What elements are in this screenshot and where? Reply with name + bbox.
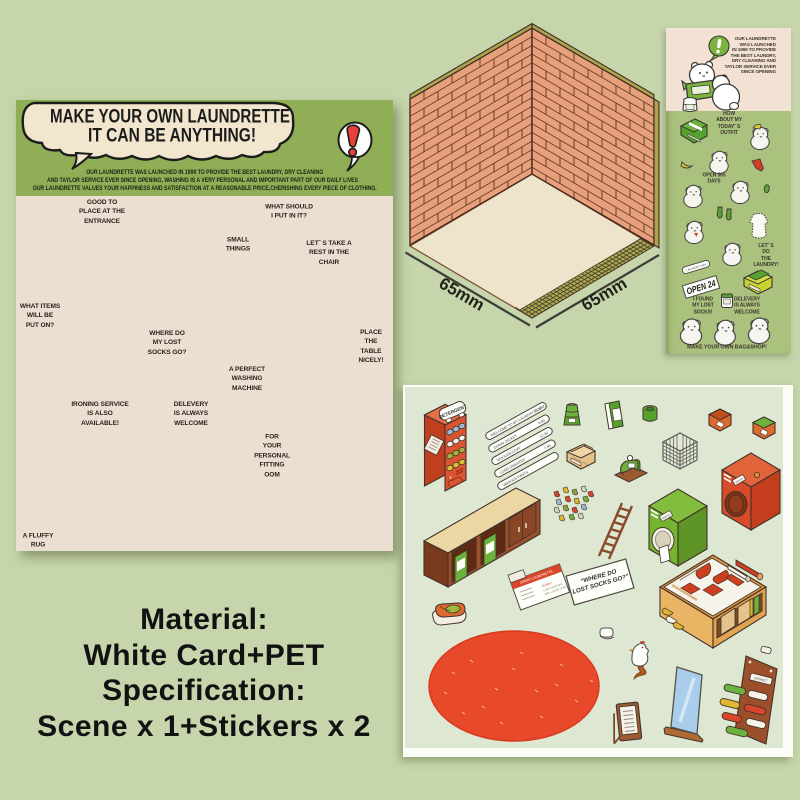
svg-text:OUR LAUNDRETTE WAS LAUNCHED IN: OUR LAUNDRETTE WAS LAUNCHED IN 1999 TO P… xyxy=(86,169,323,176)
svg-text:AND TAYLOR SERVICE EVER SINCE: AND TAYLOR SERVICE EVER SINCE OPENING, W… xyxy=(47,177,358,184)
svg-text:IT CAN BE ANYTHING!: IT CAN BE ANYTHING! xyxy=(88,126,256,147)
svg-text:MAKE YOUR OWN LAUNDRETTE: MAKE YOUR OWN LAUNDRETTE xyxy=(50,107,290,128)
svg-text:OUR LAUNDRETTE VALUES YOUR HAP: OUR LAUNDRETTE VALUES YOUR HAPPINESS AND… xyxy=(33,185,377,192)
